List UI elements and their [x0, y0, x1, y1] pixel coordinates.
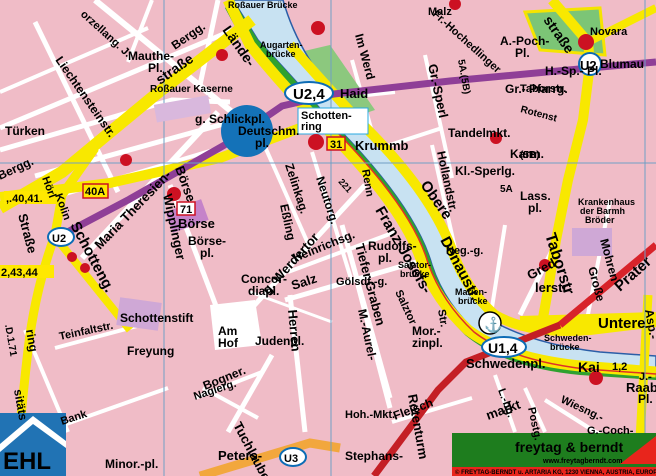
- svg-text:brücke: brücke: [266, 49, 296, 59]
- svg-text:freytag & berndt: freytag & berndt: [515, 439, 623, 455]
- svg-text:Tandelmkt.: Tandelmkt.: [448, 126, 510, 140]
- svg-text:Peters-: Peters-: [218, 448, 262, 463]
- svg-text:G.-Coch-: G.-Coch-: [587, 425, 634, 437]
- svg-text:Schottenstift: Schottenstift: [120, 311, 193, 325]
- svg-text:Rudolfs-: Rudolfs-: [368, 239, 417, 253]
- svg-text:brücke: brücke: [550, 342, 580, 352]
- svg-text:Malz: Malz: [428, 6, 452, 18]
- svg-text:Kai: Kai: [578, 359, 600, 375]
- svg-text:pl.: pl.: [200, 246, 214, 260]
- svg-text:Roßauer Brücke: Roßauer Brücke: [228, 0, 298, 10]
- svg-text:brücke: brücke: [458, 296, 488, 306]
- svg-text:Neg.-g.: Neg.-g.: [446, 245, 483, 257]
- svg-text:U3: U3: [284, 453, 298, 465]
- svg-text:31: 31: [330, 139, 342, 151]
- svg-text:Pl.: Pl.: [638, 392, 653, 406]
- svg-text:Pl.: Pl.: [148, 61, 163, 75]
- svg-text:1,2: 1,2: [612, 361, 627, 373]
- svg-text:40A: 40A: [85, 186, 105, 198]
- svg-text:Börse: Börse: [178, 216, 215, 231]
- svg-text:Pl.: Pl.: [515, 46, 530, 60]
- svg-text:diapl.: diapl.: [248, 284, 279, 298]
- svg-text:ring: ring: [301, 121, 322, 133]
- svg-text:Hoh.-Mkt.: Hoh.-Mkt.: [345, 409, 395, 421]
- svg-text:Freyung: Freyung: [127, 344, 174, 358]
- svg-text:5A: 5A: [500, 184, 513, 195]
- svg-text:Krummb: Krummb: [355, 138, 409, 153]
- svg-text:Bröder: Bröder: [585, 215, 615, 225]
- svg-text:Hof: Hof: [218, 336, 239, 350]
- svg-text:www.freytagberndt.com: www.freytagberndt.com: [542, 458, 622, 465]
- svg-text:,.40,41.: ,.40,41.: [6, 193, 43, 205]
- svg-text:Blumau: Blumau: [600, 57, 644, 71]
- svg-text:Haid: Haid: [340, 86, 368, 101]
- svg-text:H.-Sp.- Pl.: H.-Sp.- Pl.: [545, 64, 602, 78]
- svg-text:2,43,44: 2,43,44: [1, 267, 39, 279]
- svg-text:Taborstr.: Taborstr.: [520, 83, 566, 95]
- svg-text:EHL: EHL: [3, 448, 51, 475]
- svg-text:brücke: brücke: [400, 269, 430, 279]
- svg-text:pl.: pl.: [255, 136, 269, 150]
- svg-text:lerstr: lerstr: [535, 280, 568, 295]
- svg-text:Schwedenpl.: Schwedenpl.: [466, 356, 545, 371]
- svg-text:Untere: Untere: [598, 315, 646, 332]
- svg-text:Gölsdf.-g.: Gölsdf.-g.: [336, 276, 387, 288]
- svg-text:Novara: Novara: [590, 26, 628, 38]
- svg-text:Roßauer Kaserne: Roßauer Kaserne: [150, 84, 233, 95]
- svg-text:pl.: pl.: [528, 201, 542, 215]
- svg-text:Kl.-Sperlg.: Kl.-Sperlg.: [455, 164, 515, 178]
- svg-text:zinpl.: zinpl.: [412, 336, 443, 350]
- svg-text:Türken: Türken: [5, 124, 45, 138]
- svg-text:Judenpl.: Judenpl.: [255, 334, 304, 348]
- svg-text:(5B): (5B): [520, 150, 539, 161]
- svg-text:U1,4: U1,4: [488, 340, 518, 356]
- svg-text:© FREYTAG-BERNDT u. ARTARIA KG: © FREYTAG-BERNDT u. ARTARIA KG, 1230 VIE…: [455, 469, 656, 476]
- svg-text:J.-: J.-: [639, 371, 652, 383]
- svg-text:U2: U2: [52, 233, 66, 245]
- svg-text:Minor.-pl.: Minor.-pl.: [105, 457, 158, 471]
- svg-text:⚓: ⚓: [484, 316, 503, 334]
- svg-text:U2,4: U2,4: [293, 86, 325, 103]
- svg-text:Stephans-: Stephans-: [345, 449, 403, 463]
- svg-text:71: 71: [180, 204, 192, 216]
- svg-text:pl.: pl.: [378, 251, 392, 265]
